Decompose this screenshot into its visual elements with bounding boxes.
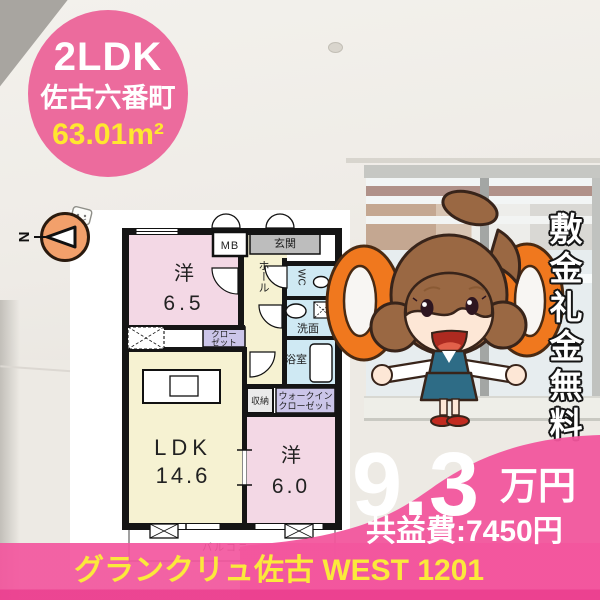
label-ldk: LDK [154, 435, 212, 460]
smoke-detector [328, 42, 343, 53]
sink-icon [286, 304, 306, 318]
label-closet-2: ゼット [211, 338, 237, 348]
label-western1-size: 6.5 [163, 292, 204, 315]
curtain-rail [346, 158, 600, 163]
door-arc-entrance [266, 214, 294, 228]
label-mb: MB [221, 240, 240, 252]
badge-area: 63.01m² [52, 118, 164, 151]
listing-flyer: MB 玄関 ホール WC 洗面 浴室 クロー ゼット 洋 6.5 LDK 14.… [0, 0, 600, 600]
label-entrance: 玄関 [274, 236, 296, 250]
label-storage: 収納 [251, 395, 269, 406]
label-western1-type: 洋 [174, 262, 194, 285]
label-washroom: 洗面 [297, 322, 319, 335]
label-hall: ホール [257, 260, 270, 293]
rent-unit: 万円 [500, 468, 576, 506]
mascot-character [371, 185, 526, 426]
label-bath: 浴室 [285, 352, 307, 366]
balcony-hatch-box-left [150, 524, 178, 538]
property-badge: 2LDK 佐古六番町 63.01m² [28, 10, 188, 177]
label-ldk-size: 14.6 [156, 463, 211, 488]
badge-location: 佐古六番町 [41, 82, 176, 114]
compass-north-label: N [16, 232, 33, 243]
promo-vertical-text: 敷金礼金無料 [547, 212, 580, 446]
wall-left [122, 228, 129, 530]
door-arc-mb [212, 214, 240, 228]
pipe-space-box [128, 327, 164, 349]
badge-layout: 2LDK [54, 36, 162, 78]
building-name: グランクリュ佐古 WEST 1201 [74, 556, 484, 586]
compass: N [8, 198, 108, 270]
kitchen-counter [143, 370, 220, 403]
maintenance-fee: 共益費:7450円 [366, 517, 563, 547]
label-wc: WC [296, 269, 307, 286]
